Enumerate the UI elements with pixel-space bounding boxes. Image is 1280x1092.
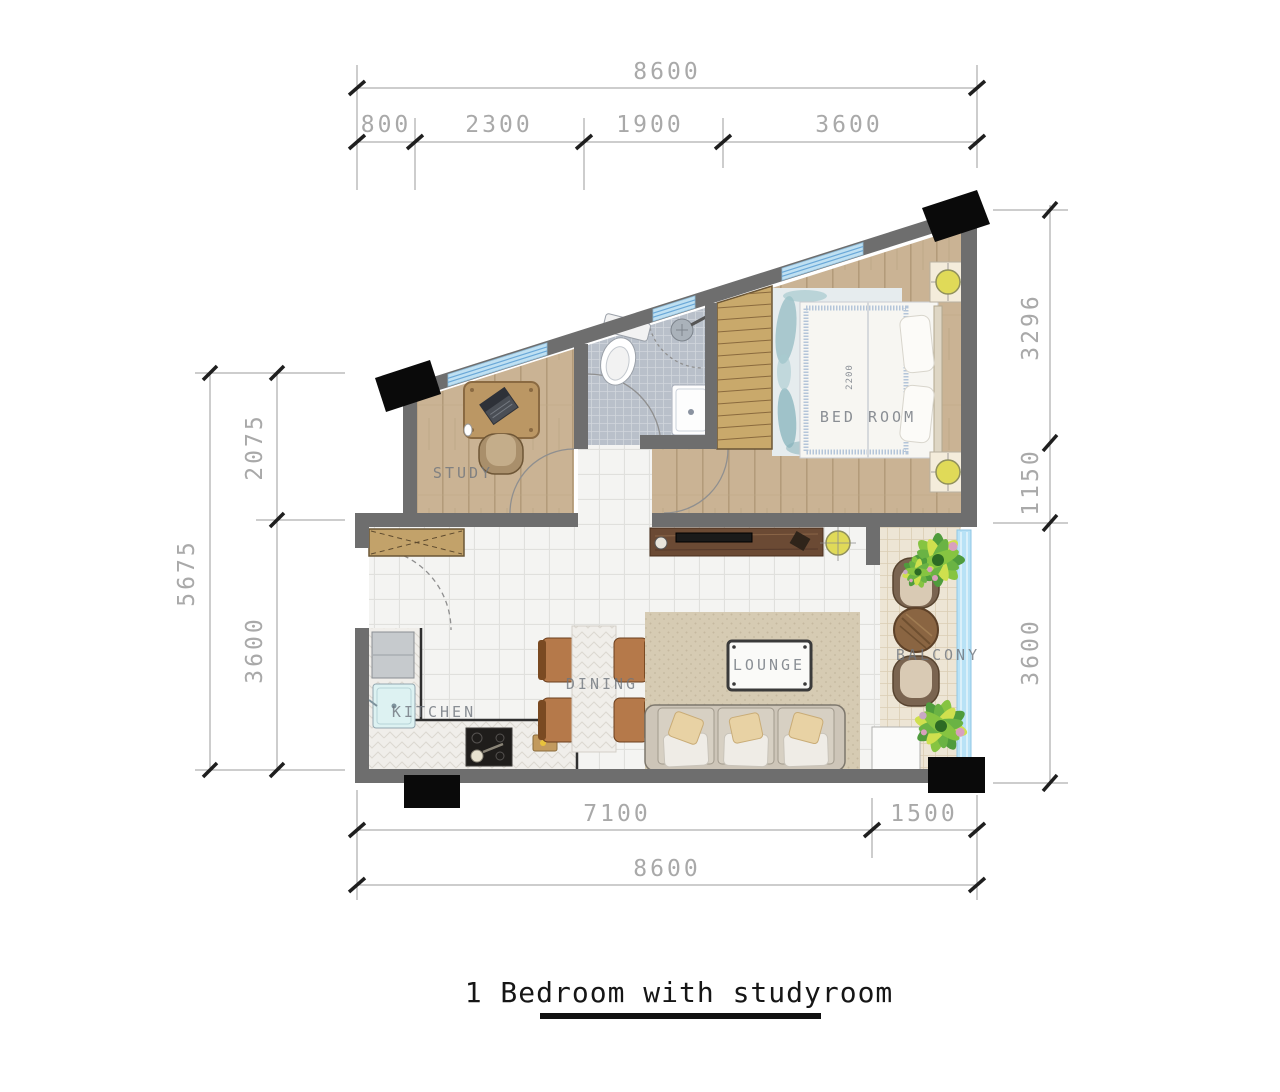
sofa <box>645 705 845 771</box>
dim-top-seg2: 2300 <box>465 112 532 138</box>
dim-left-seg2: 3600 <box>242 616 268 683</box>
bath-bottom-wall <box>640 435 717 449</box>
dim-top-total: 8600 <box>633 59 700 85</box>
floor-plan-drawing: STUDY BED ROOM 2200 KITCHEN DINING LOUNG… <box>0 0 1280 1092</box>
lounge-label: LOUNGE <box>733 656 805 674</box>
dim-bottom-seg2: 1500 <box>890 801 957 827</box>
cooktop <box>466 728 512 766</box>
dim-right-seg3: 3600 <box>1018 618 1044 685</box>
floor-plan-page: STUDY BED ROOM 2200 KITCHEN DINING LOUNG… <box>0 0 1280 1092</box>
dim-bottom-seg1: 7100 <box>583 801 650 827</box>
fridge <box>372 632 414 678</box>
left-wall-lower <box>355 628 369 783</box>
kitchen-label: KITCHEN <box>392 703 476 721</box>
bed-width-label: 2200 <box>845 364 855 390</box>
dimensions-left: 2075 5675 3600 <box>174 366 345 777</box>
bed <box>800 302 942 458</box>
pillow <box>899 315 935 374</box>
dining-label: DINING <box>566 675 638 693</box>
balcony-stub-wall <box>866 527 880 565</box>
wardrobe <box>717 286 772 449</box>
nightstand-top <box>930 262 966 302</box>
study-label: STUDY <box>433 464 493 482</box>
corner-marker-top-right <box>922 190 990 242</box>
mouse <box>464 424 472 436</box>
headboard <box>934 306 942 454</box>
dim-left-total: 5675 <box>174 539 200 606</box>
tv <box>676 533 752 542</box>
dim-top-seg3: 1900 <box>616 112 683 138</box>
plan-title: 1 Bedroom with studyroom <box>465 976 894 1019</box>
mid-wall-left <box>355 513 578 527</box>
table-lamp <box>936 270 960 294</box>
dim-bottom-total: 8600 <box>633 856 700 882</box>
left-wall-upper <box>355 513 369 548</box>
balcony-label: BALCONY <box>896 646 980 664</box>
study-bath-wall <box>574 344 588 449</box>
dimensions-top: 8600 800 2300 1900 3600 <box>349 59 985 190</box>
dim-right-seg2: 1150 <box>1018 448 1044 515</box>
dim-left-seg1: 2075 <box>242 413 268 480</box>
corner-marker-bottom-left <box>404 775 460 808</box>
bedroom-label: BED ROOM <box>820 408 916 426</box>
speaker <box>655 537 667 549</box>
dimensions-right: 3296 1150 3600 <box>993 202 1068 791</box>
table-lamp <box>936 460 960 484</box>
corner-marker-bottom-right <box>928 757 985 793</box>
upper-left-wall <box>403 392 417 527</box>
plan-title-text: 1 Bedroom with studyroom <box>465 976 894 1009</box>
bath-wardrobe-wall <box>705 303 717 449</box>
dim-top-seg1: 800 <box>361 112 412 138</box>
dim-top-seg4: 3600 <box>815 112 882 138</box>
ac-unit <box>872 727 920 770</box>
mid-wall-right <box>652 513 977 527</box>
dim-right-seg1: 3296 <box>1018 293 1044 360</box>
right-wall <box>961 205 977 527</box>
nightstand-bottom <box>930 452 966 492</box>
tv-console <box>650 528 823 556</box>
hallway-floor <box>578 445 652 527</box>
sofa-pillow <box>729 712 764 744</box>
title-underline <box>540 1013 821 1019</box>
dining-chair <box>538 698 576 742</box>
wash-basin <box>672 385 710 435</box>
